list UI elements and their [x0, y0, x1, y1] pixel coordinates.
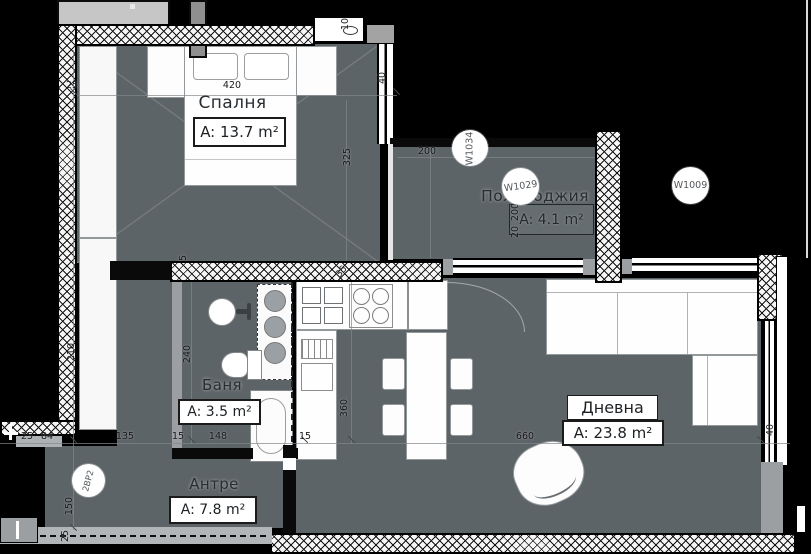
bathroom-label: Баня [198, 376, 246, 394]
sofa-seat-div-2 [687, 292, 688, 354]
boundary-line-right [806, 0, 808, 258]
bath-cabinet [257, 284, 292, 380]
dim-hall-wall: 25 [60, 526, 72, 546]
bedroom-window [377, 44, 395, 144]
window-marker-w1034: W1034 [452, 130, 488, 166]
dim-line [351, 282, 352, 444]
stove-burner-2 [372, 288, 389, 305]
sofa-top [546, 279, 758, 355]
living-top-window [632, 256, 757, 273]
dim-bath-depth: 240 [182, 342, 194, 366]
living-label: Дневна [567, 395, 658, 420]
wall-bedroom-bottom [170, 261, 443, 282]
dim-wall-small: 5 [178, 252, 190, 264]
dim-bedroom-depth: 325 [342, 145, 354, 169]
wall-block-tick [16, 521, 19, 539]
window-marker-w1029: W1029 [502, 168, 539, 205]
wall-bath-bottom [172, 448, 253, 459]
sofa-right [692, 355, 758, 426]
stove-burner-3 [353, 307, 370, 324]
dining-chair-3 [450, 358, 473, 390]
unit-marker-2bp2: 2BP2 [72, 464, 105, 497]
dim-line [346, 100, 347, 260]
toilet-tank [247, 350, 262, 380]
dim-bedroom-width: 420 [220, 80, 244, 92]
dishwasher [301, 339, 333, 359]
washer-drum-1 [264, 290, 286, 312]
dining-chair-2 [382, 404, 405, 436]
bedroom-label: Спалня [190, 93, 275, 113]
window-marker-w1009-label: W1009 [674, 180, 708, 191]
adjacent-unit-block [57, 0, 170, 26]
nightstand-right [296, 46, 337, 96]
bed [184, 46, 297, 186]
hallway-area: A: 7.8 m² [169, 496, 257, 524]
dim-line [430, 150, 431, 258]
dim-wardrobe-depth: 210 [66, 340, 78, 364]
wall-bottom [270, 533, 796, 554]
dim-row-84: 84 [38, 431, 56, 443]
dining-chair-4 [450, 404, 473, 436]
stove-burner-4 [372, 307, 389, 324]
window-a-jamb-right [583, 259, 595, 275]
dim-row-148: 148 [207, 431, 229, 443]
sink-basin-2 [324, 287, 343, 304]
sink-basin-3 [302, 307, 321, 324]
dim-line [0, 443, 790, 444]
blanket-fold-line [185, 159, 296, 160]
washer-drum-3 [264, 342, 286, 364]
hall-living-door-gap [283, 458, 296, 470]
entry-door-dashed-line [0, 535, 266, 537]
window-a-jamb-left [443, 259, 453, 275]
wall-corner-gray [366, 24, 395, 44]
bedroom-door-wall [110, 261, 172, 280]
dim-row-15a: 15 [169, 431, 187, 443]
right-pier-gray [761, 462, 783, 534]
dim-row-660: 660 [514, 431, 536, 443]
hallway-label: Антре [188, 475, 240, 493]
dim-row-135: 135 [114, 431, 136, 443]
sink-basin-4 [324, 307, 343, 324]
dim-loggia-width: 200 [415, 146, 439, 158]
stove [349, 284, 393, 328]
fridge-divider [407, 281, 409, 329]
toilet-bowl [221, 352, 248, 378]
nightstand-left [147, 46, 185, 98]
wardrobe [79, 46, 117, 238]
dim-kitchen-depth: 360 [339, 396, 351, 420]
sofa-seat-div-1 [617, 292, 618, 354]
window-b-jamb-left [622, 259, 632, 274]
wall-block-bottom-left [0, 517, 38, 543]
wall-hall-living [283, 445, 296, 535]
living-right-window [763, 321, 776, 462]
window-marker-w1034-label: W1034 [464, 131, 475, 165]
dim-tick-left-b [9, 424, 12, 440]
wall-loggia-right [595, 130, 622, 283]
window-marker-w1009: W1009 [672, 167, 709, 204]
dim-loggia-small: 20 [510, 222, 522, 242]
sofa-right-cushion-line [707, 356, 708, 425]
dim-shaft: 10 [340, 16, 352, 32]
sink-basin-1 [302, 287, 321, 304]
dining-chair-1 [382, 358, 405, 390]
sofa-back-line [547, 292, 757, 293]
wall-bedroom-top [55, 24, 315, 46]
washbasin-tap-handle [247, 303, 251, 320]
dim-row-15b: 15 [296, 431, 314, 443]
bedroom-area: A: 13.7 m² [193, 117, 286, 147]
dim-line [73, 50, 74, 530]
shaft-box [313, 16, 365, 43]
stove-burner-1 [353, 288, 370, 305]
right-window-sill [776, 256, 788, 466]
dim-bedroom-side: 25 [60, 80, 84, 92]
dim-living-window: 40 [765, 422, 777, 438]
kitchen-counter-top [296, 280, 448, 330]
wall-bath-kitchen [291, 282, 293, 460]
dining-table [406, 332, 447, 460]
washer-drum-2 [264, 316, 286, 338]
window-b-dashes [630, 250, 757, 253]
window-marker-w1029-label: W1029 [503, 179, 538, 195]
loggia-left-edge [388, 144, 393, 260]
oven [301, 363, 333, 391]
unit-marker-2bp2-label: 2BP2 [81, 469, 96, 493]
washbasin [208, 298, 236, 326]
wall-endcap-right [796, 505, 806, 533]
site-dot [130, 4, 135, 9]
dim-row-25: 25 [18, 431, 36, 443]
bathroom-area: A: 3.5 m² [178, 399, 261, 425]
living-area: A: 23.8 m² [562, 420, 664, 446]
floor-plan: Спалня A: 13.7 m² Полулоджия A: 4.1 m² Б… [0, 0, 811, 554]
pillow-right [244, 53, 289, 80]
loggia-living-window [453, 258, 583, 275]
dim-hall-depth: 150 [64, 494, 76, 518]
dim-bedroom-window: 40 [377, 70, 389, 86]
